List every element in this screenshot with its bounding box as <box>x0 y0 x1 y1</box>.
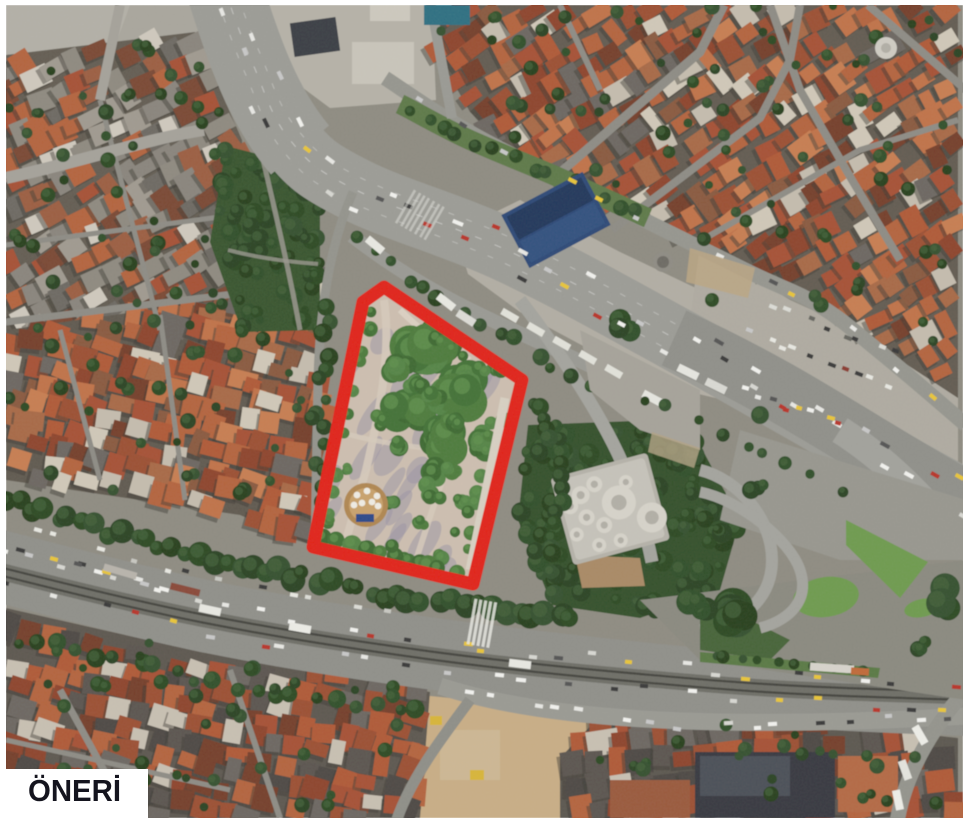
svg-text:ÖNERİ: ÖNERİ <box>28 773 121 808</box>
